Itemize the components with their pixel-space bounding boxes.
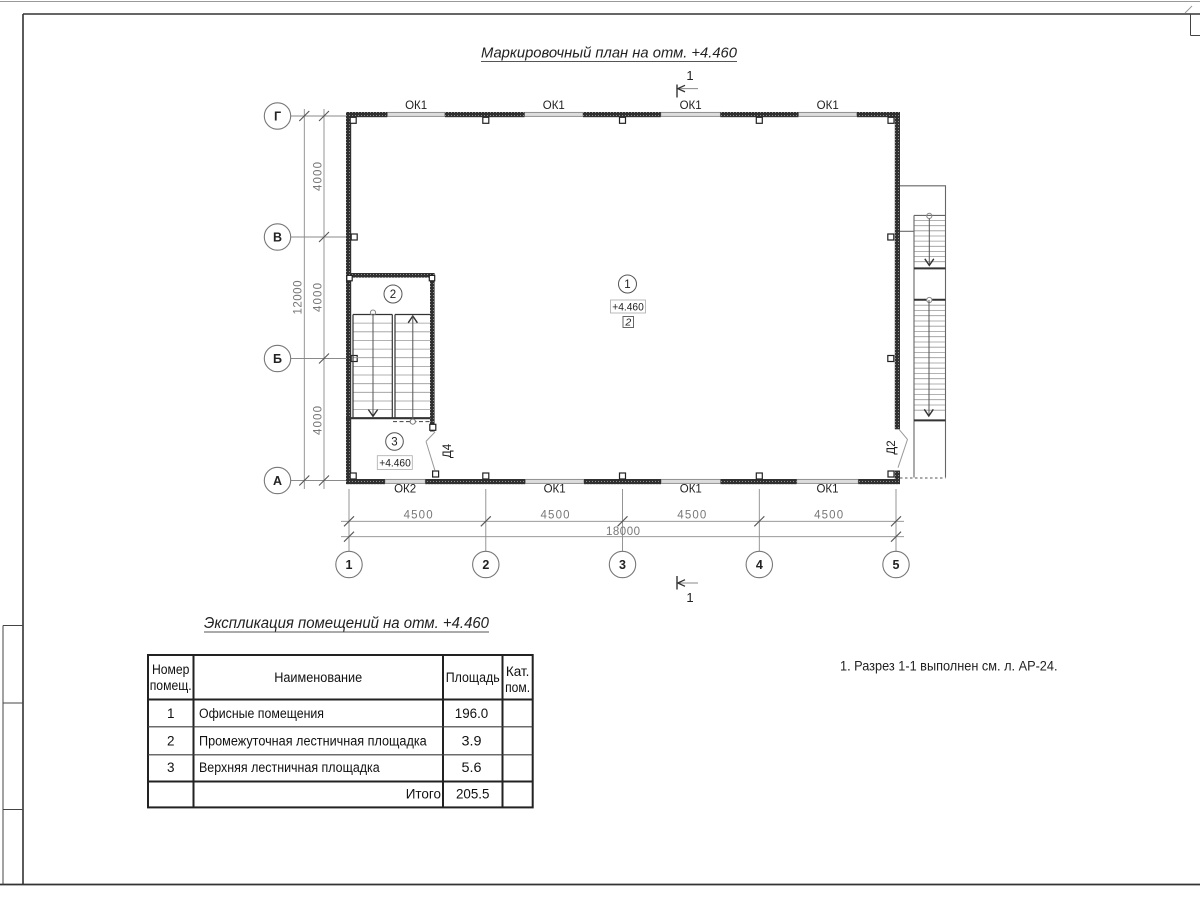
- svg-text:Наименование: Наименование: [274, 670, 362, 685]
- svg-text:Номер: Номер: [152, 662, 190, 677]
- svg-text:Д4: Д4: [442, 443, 454, 458]
- svg-text:5.6: 5.6: [462, 760, 482, 775]
- svg-text:Офисные помещения: Офисные помещения: [199, 706, 324, 721]
- svg-text:Б: Б: [273, 352, 282, 366]
- svg-text:1: 1: [686, 590, 693, 605]
- svg-text:4: 4: [756, 558, 763, 572]
- svg-text:ОК1: ОК1: [543, 100, 565, 112]
- svg-text:4500: 4500: [677, 510, 706, 522]
- svg-text:18000: 18000: [606, 526, 640, 538]
- svg-text:Площадь: Площадь: [446, 670, 500, 685]
- svg-text:3: 3: [619, 558, 626, 572]
- svg-text:ОК1: ОК1: [544, 484, 566, 496]
- svg-text:ОК1: ОК1: [405, 100, 427, 112]
- svg-text:205.5: 205.5: [456, 787, 490, 802]
- svg-text:ОК1: ОК1: [816, 484, 838, 496]
- svg-text:4500: 4500: [404, 510, 433, 522]
- svg-text:4500: 4500: [814, 510, 843, 522]
- svg-text:196.0: 196.0: [455, 706, 489, 721]
- svg-text:В: В: [273, 231, 282, 245]
- svg-text:3: 3: [391, 437, 397, 449]
- svg-text:пом.: пом.: [505, 680, 530, 695]
- svg-text:3: 3: [167, 760, 175, 775]
- svg-text:4500: 4500: [541, 510, 570, 522]
- svg-text:1: 1: [346, 558, 353, 572]
- svg-text:ОК1: ОК1: [817, 100, 839, 112]
- svg-text:Верхняя лестничная площадка: Верхняя лестничная площадка: [199, 760, 380, 775]
- svg-text:1: 1: [624, 279, 630, 291]
- svg-text:2: 2: [167, 733, 175, 748]
- svg-text:12000: 12000: [293, 281, 305, 315]
- svg-text:2: 2: [390, 289, 396, 301]
- svg-text:3.9: 3.9: [462, 733, 482, 748]
- svg-text:Г: Г: [274, 110, 281, 124]
- svg-text:1: 1: [167, 706, 175, 721]
- svg-text:ОК1: ОК1: [680, 100, 702, 112]
- svg-text:2: 2: [624, 317, 631, 329]
- svg-text:Экспликация помещений на отм.: Экспликация помещений на отм. +4.460: [204, 615, 489, 632]
- svg-text:5: 5: [893, 558, 900, 572]
- svg-text:4000: 4000: [312, 406, 324, 435]
- svg-text:Промежуточная лестничная площа: Промежуточная лестничная площадка: [199, 733, 427, 748]
- svg-text:2: 2: [482, 558, 489, 572]
- svg-text:ОК1: ОК1: [680, 484, 702, 496]
- svg-text:Итого: Итого: [406, 787, 441, 802]
- svg-text:+4.460: +4.460: [379, 457, 411, 469]
- svg-text:Д2: Д2: [886, 440, 898, 454]
- svg-text:Кат.: Кат.: [506, 664, 530, 679]
- svg-text:помещ.: помещ.: [150, 678, 192, 693]
- svg-text:1. Разрез 1-1 выполнен см. л.: 1. Разрез 1-1 выполнен см. л. АР-24.: [840, 658, 1058, 674]
- svg-text:А: А: [273, 474, 282, 488]
- svg-text:4000: 4000: [312, 283, 324, 312]
- svg-text:+4.460: +4.460: [612, 301, 644, 313]
- svg-text:1: 1: [686, 68, 693, 83]
- svg-text:Маркировочный план на отм. +4.: Маркировочный план на отм. +4.460: [481, 45, 738, 62]
- svg-text:4000: 4000: [312, 162, 324, 191]
- svg-text:ОК2: ОК2: [394, 484, 416, 496]
